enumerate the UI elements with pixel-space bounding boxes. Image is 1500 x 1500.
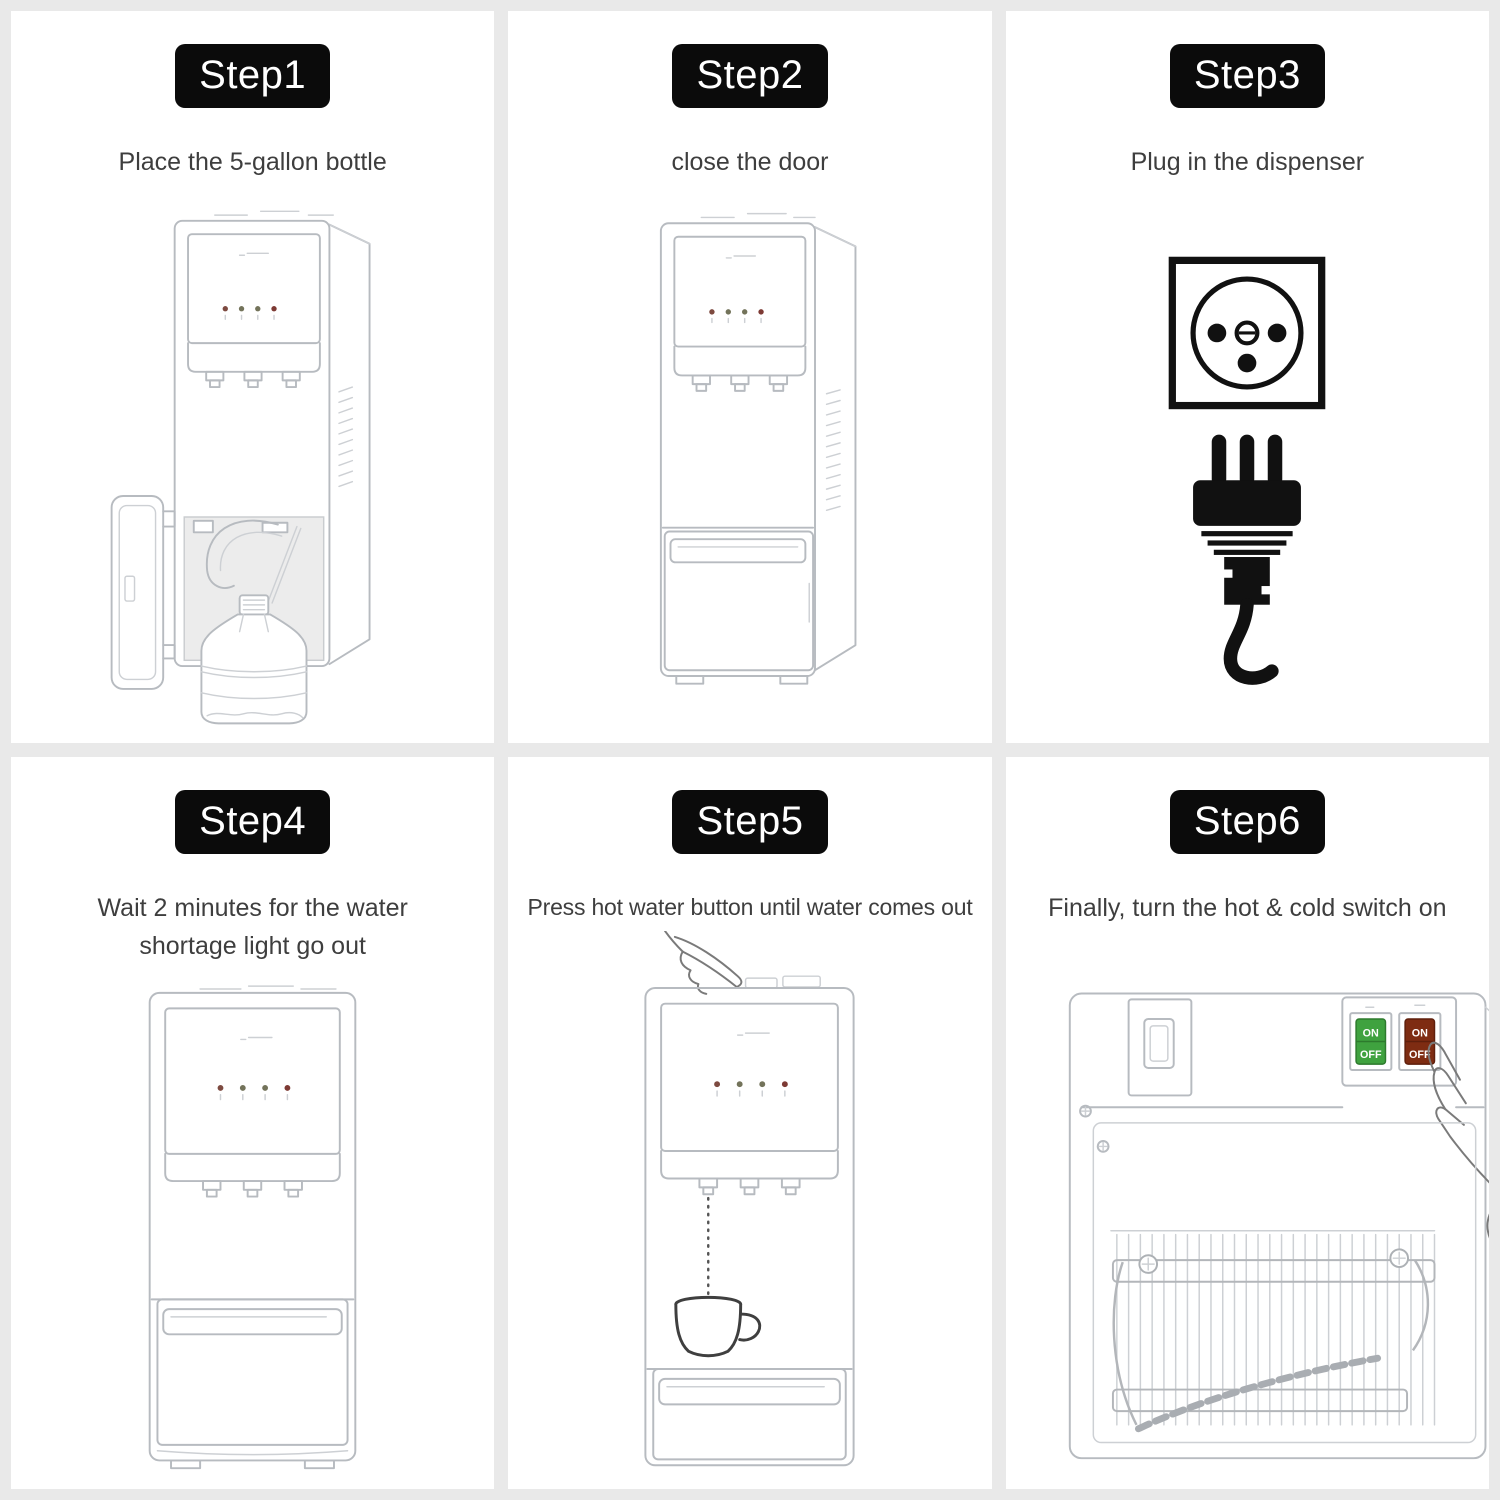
instruction-grid: Step1 Place the 5-gallon bottle: [0, 0, 1500, 1500]
water-taps: [700, 1178, 800, 1194]
step4-badge: Step4: [175, 790, 330, 854]
indicator-lights: [222, 306, 276, 319]
step2-figure: [508, 196, 991, 736]
water-taps: [693, 375, 787, 390]
step3-figure: [1006, 250, 1489, 696]
open-door: [111, 495, 174, 688]
power-socket-icon: [1173, 260, 1322, 405]
dispenser-closed-illustration: [605, 196, 894, 736]
lower-door: [158, 1299, 348, 1445]
cold-switch: ON OFF: [1356, 1018, 1385, 1063]
dispenser-open-door-illustration: [100, 196, 406, 731]
indicator-lights: [710, 309, 765, 322]
step-panel-1: Step1 Place the 5-gallon bottle: [11, 11, 494, 743]
socket-and-plug-illustration: [1112, 250, 1382, 696]
water-taps: [206, 371, 300, 386]
step4-figure: [11, 979, 494, 1484]
svg-text:OFF: OFF: [1360, 1049, 1382, 1061]
step-panel-4: Step4 Wait 2 minutes for the water short…: [11, 757, 494, 1489]
step-panel-3: Step3 Plug in the dispenser: [1006, 11, 1489, 743]
switch-plate: ON OFF ON OFF: [1342, 997, 1456, 1085]
reaching-hand: [1429, 1042, 1489, 1261]
step2-badge: Step2: [672, 44, 827, 108]
power-inlet-box: [1129, 999, 1192, 1095]
condenser-grille: [1111, 1230, 1435, 1428]
step5-badge: Step5: [672, 790, 827, 854]
cup: [676, 1297, 760, 1355]
pressing-hand: [666, 931, 742, 994]
hot-switch: ON OFF: [1405, 1018, 1434, 1063]
step3-badge: Step3: [1170, 44, 1325, 108]
closed-door: [665, 531, 813, 670]
step6-badge: Step6: [1170, 790, 1325, 854]
lower-door: [654, 1369, 847, 1459]
step2-caption: close the door: [671, 144, 828, 182]
step1-caption: Place the 5-gallon bottle: [119, 144, 387, 182]
step1-figure: [11, 196, 494, 731]
step-panel-2: Step2 close the door: [508, 11, 991, 743]
power-plug-icon: [1193, 434, 1301, 677]
svg-text:ON: ON: [1412, 1027, 1428, 1039]
indicator-lights: [218, 1085, 291, 1100]
step6-caption: Finally, turn the hot & cold switch on: [1048, 890, 1446, 928]
step1-badge: Step1: [175, 44, 330, 108]
dispenser-press-button-illustration: [602, 931, 897, 1481]
brand-mark: [727, 255, 756, 257]
step-panel-6: Step6 Finally, turn the hot & cold switc…: [1006, 757, 1489, 1489]
brand-mark: [239, 253, 268, 255]
brand-mark: [241, 1038, 272, 1040]
dispenser-front-illustration: [107, 979, 398, 1484]
step5-figure: [508, 931, 991, 1481]
dispenser-back-illustration: ON OFF ON OFF: [1054, 968, 1489, 1468]
water-taps: [203, 1181, 302, 1197]
step5-caption: Press hot water button until water comes…: [527, 890, 972, 925]
step6-figure: ON OFF ON OFF: [1006, 968, 1489, 1468]
step-panel-5: Step5 Press hot water button until water…: [508, 757, 991, 1489]
top-buttons: [746, 978, 777, 988]
svg-text:ON: ON: [1363, 1027, 1379, 1039]
brand-mark: [738, 1033, 769, 1035]
step3-caption: Plug in the dispenser: [1131, 144, 1364, 182]
indicator-lights: [715, 1081, 789, 1096]
step4-caption: Wait 2 minutes for the water shortage li…: [53, 890, 453, 965]
